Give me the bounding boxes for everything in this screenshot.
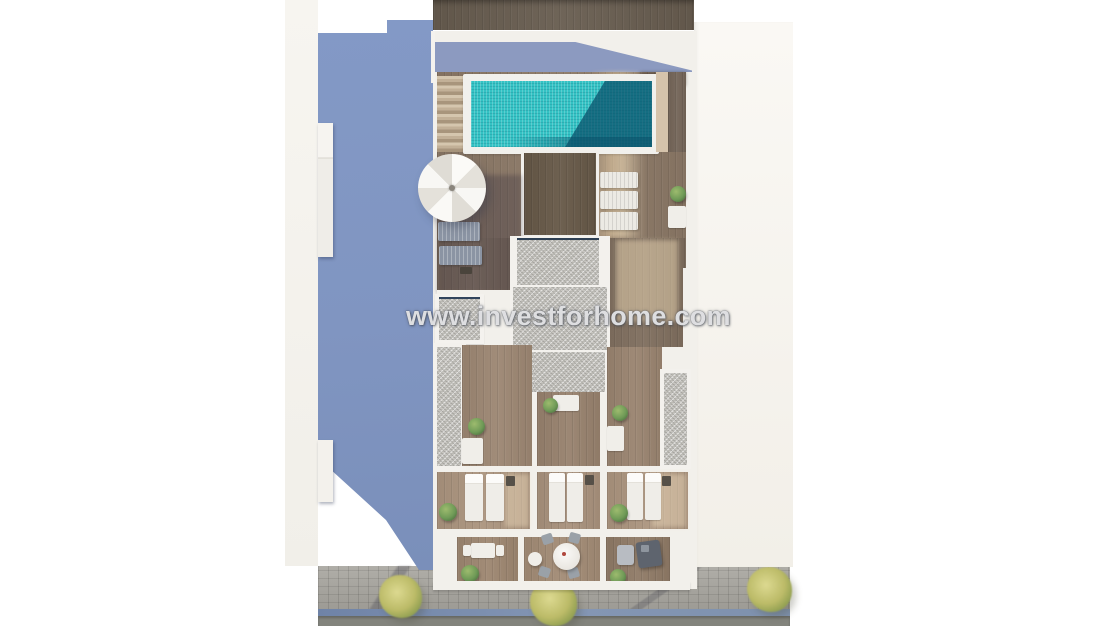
bed: [645, 473, 661, 520]
terrace-side-table-round: [528, 552, 542, 566]
nightstand: [662, 476, 671, 486]
deck-side-table-dark: [460, 267, 472, 274]
deck-side-table-white: [668, 206, 686, 228]
terrace-sofa: [635, 539, 662, 568]
terrace-left-chair: [496, 545, 504, 556]
bedroom-left-plant: [439, 503, 457, 521]
round-dining-table: [553, 543, 580, 570]
terrace-left-chair: [463, 545, 471, 556]
left-wall-lit-panel-upper: [318, 123, 333, 257]
pool-side-dark-wood: [668, 72, 686, 152]
roof-wood-band: [433, 0, 694, 30]
sun-lounger-right-1: [600, 172, 638, 188]
party-wall-sliver: [431, 31, 435, 83]
sun-lounger-right-3: [600, 212, 638, 230]
right-gravel-strip: [664, 373, 687, 465]
table-decor-dot: [562, 552, 566, 556]
nightstand: [506, 476, 515, 486]
sofa-cushion: [641, 545, 649, 552]
right-building-face: [694, 22, 793, 567]
terrace-armchair: [617, 545, 634, 565]
stair-core-gravel-neck: [517, 240, 599, 285]
parasol-pole: [449, 185, 455, 191]
street-tree-3: [747, 567, 792, 612]
room-left-plant: [468, 418, 485, 435]
stair-core-gravel-low: [527, 352, 605, 392]
left-building-shadow-wall: [318, 20, 433, 570]
building-bottom-wall: [433, 581, 690, 590]
sun-lounger-right-2: [600, 191, 638, 209]
left-gravel-strip: [437, 347, 461, 466]
nightstand: [585, 475, 594, 485]
left-building-lit-face: [285, 0, 318, 566]
bed: [567, 473, 583, 522]
room-right-table: [607, 426, 624, 451]
street-tree-1: [379, 575, 422, 618]
stair-bulkhead-wood-top: [521, 150, 599, 238]
pool-bottom-shade: [471, 137, 652, 147]
aerial-floorplan-render: www.investforhome.com: [0, 0, 1110, 626]
bed: [465, 474, 483, 521]
watermark-text: www.investforhome.com: [406, 301, 706, 332]
terrace-left-table: [471, 543, 495, 558]
gravel-terrace-navy-trim: [439, 297, 480, 299]
deck-potted-plant: [670, 186, 686, 202]
room-right-plant: [612, 405, 628, 421]
bedroom-right-plant: [610, 504, 628, 522]
bed: [549, 473, 565, 522]
bed: [486, 474, 504, 521]
sun-lounger-left-2: [439, 246, 482, 265]
left-wall-lit-panel-lower: [318, 440, 333, 502]
sun-lounger-left-1: [438, 222, 480, 241]
bed: [627, 473, 643, 520]
room-left-table: [462, 438, 483, 464]
pool-side-beige-strip: [656, 72, 668, 152]
terrace-left-plant: [461, 565, 479, 582]
room-middle-plant: [543, 398, 558, 413]
